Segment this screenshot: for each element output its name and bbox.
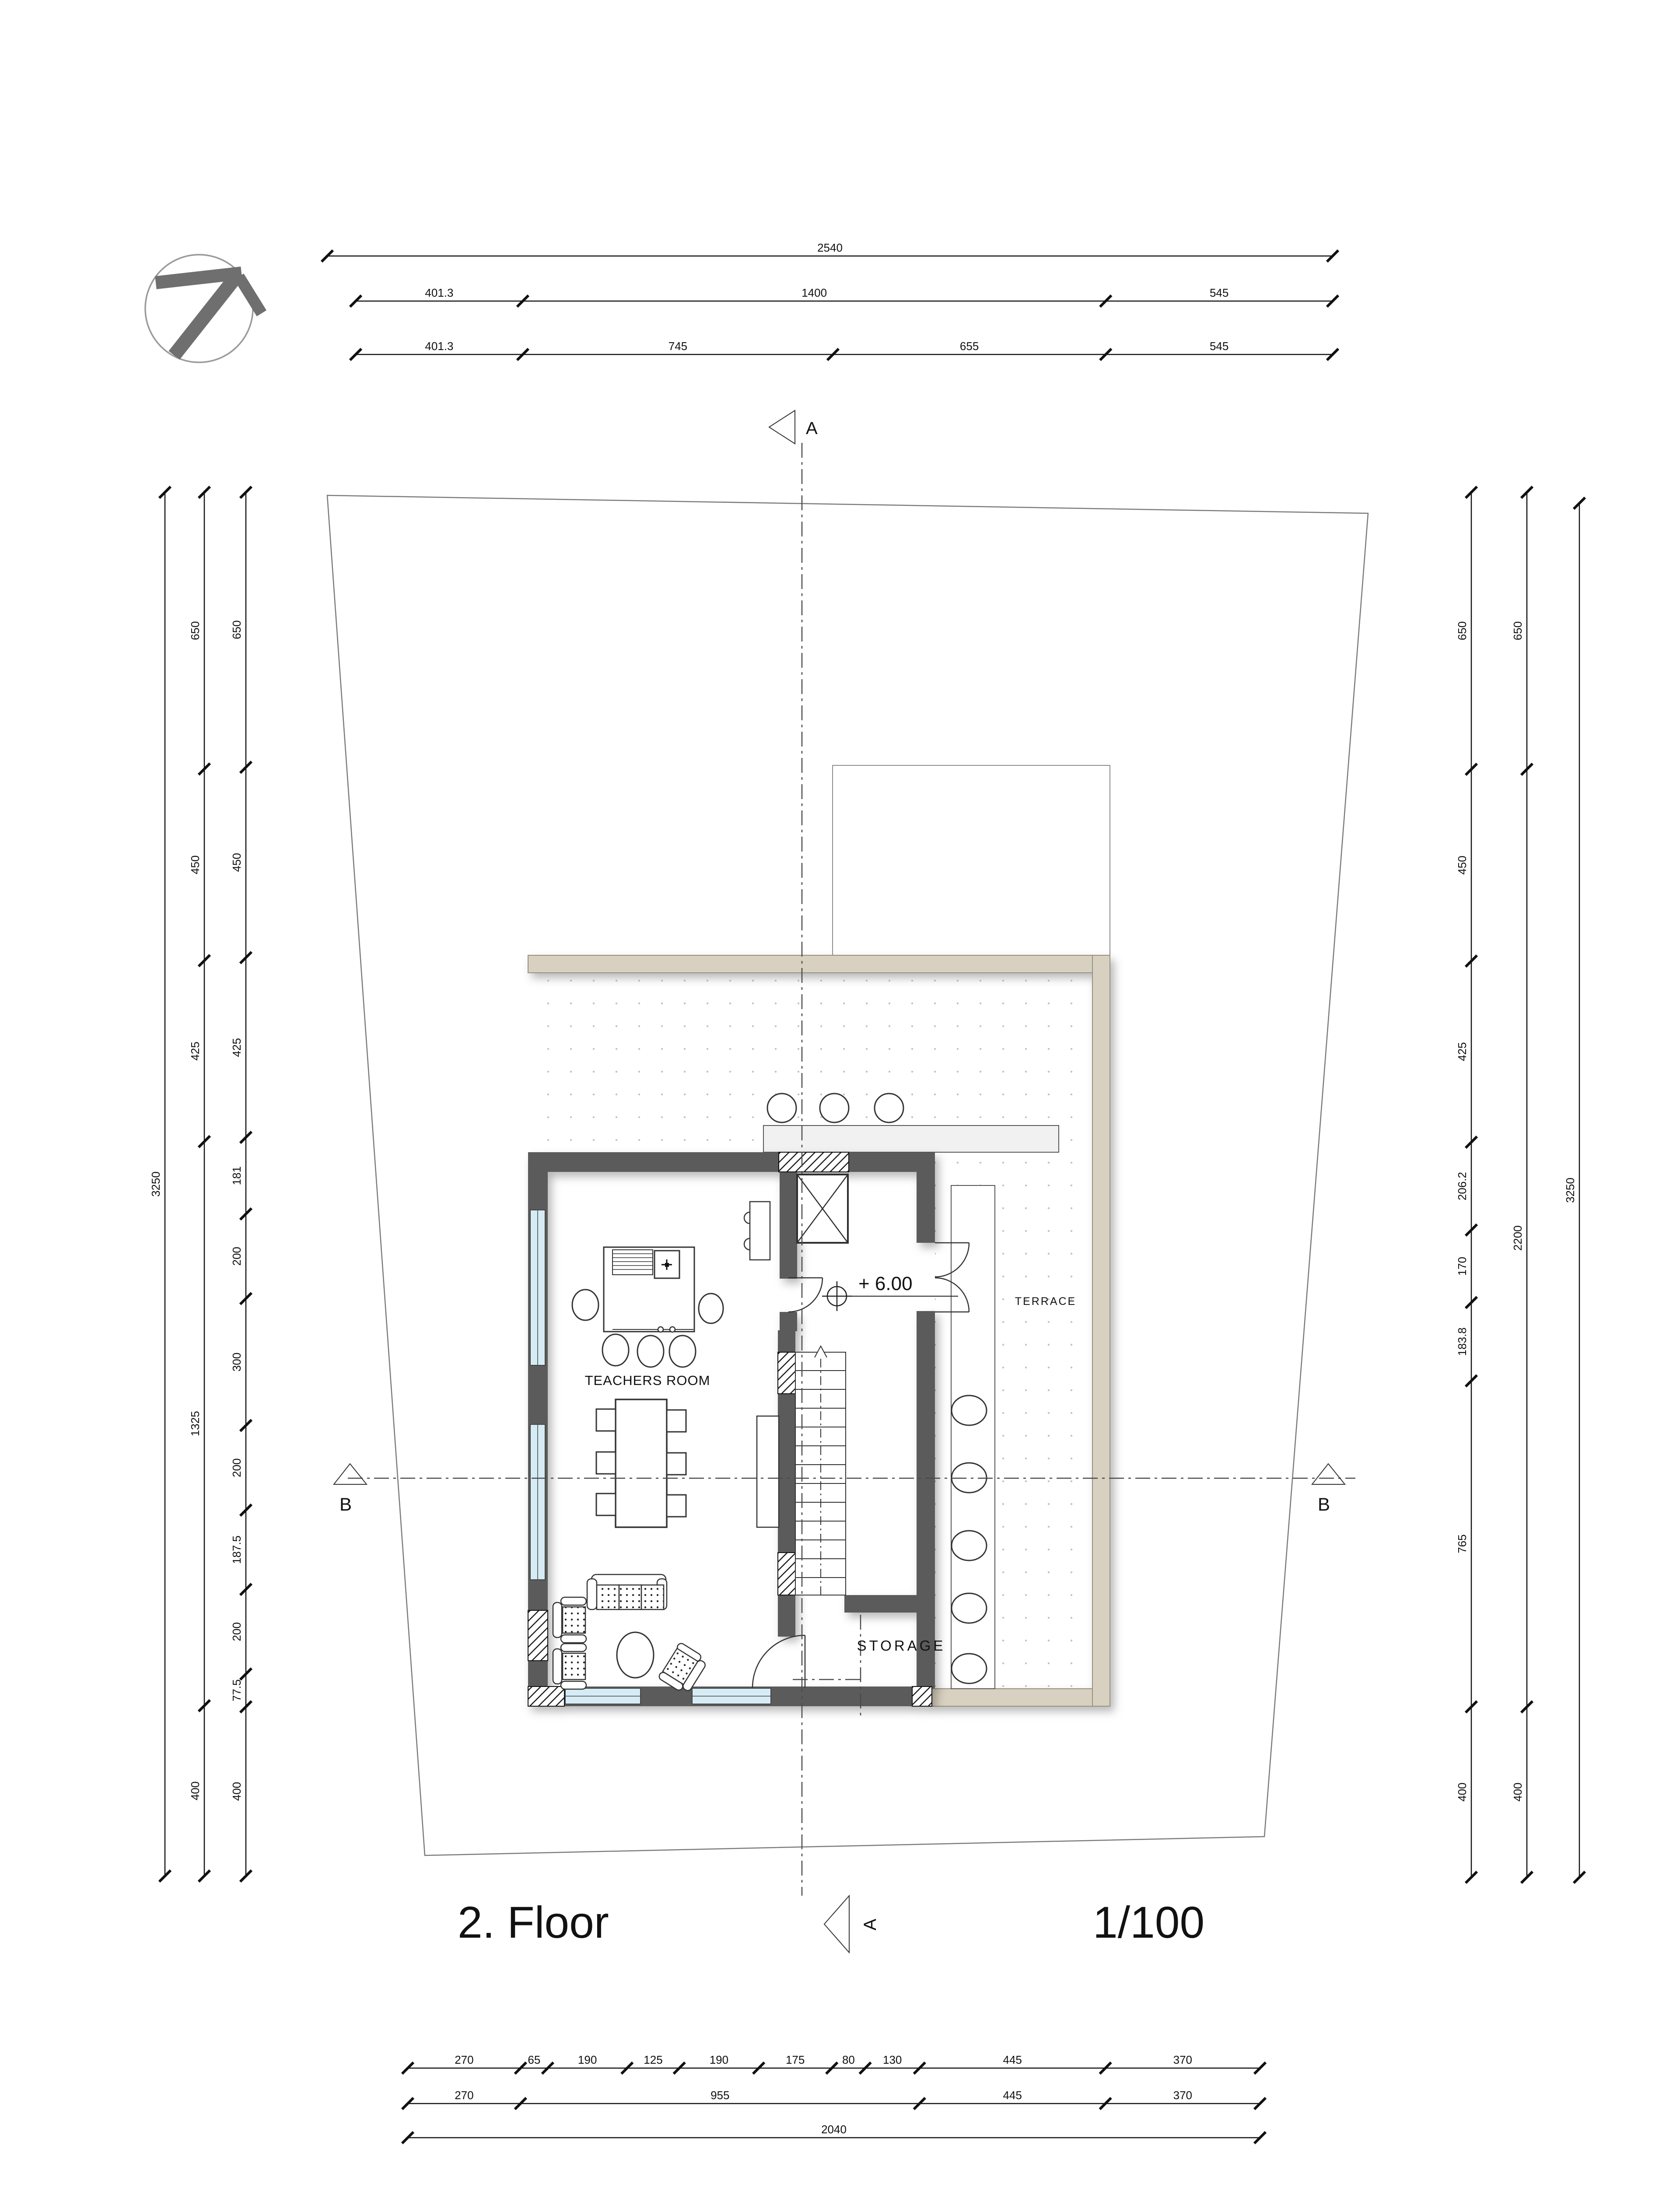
svg-text:2200: 2200 xyxy=(1511,1225,1524,1251)
storage-label: STORAGE xyxy=(857,1637,946,1654)
svg-text:2540: 2540 xyxy=(817,241,843,254)
north-arrow-icon xyxy=(145,255,262,362)
teachers-room-furniture xyxy=(553,1202,779,1696)
svg-text:650: 650 xyxy=(1511,621,1524,640)
svg-text:400: 400 xyxy=(189,1781,202,1800)
section-letter: B xyxy=(339,1494,352,1515)
section-letter: A xyxy=(861,1918,880,1930)
section-letter: A xyxy=(806,419,818,438)
svg-text:401.3: 401.3 xyxy=(425,286,453,299)
conference-table xyxy=(596,1399,686,1527)
svg-text:190: 190 xyxy=(578,2053,597,2066)
svg-text:125: 125 xyxy=(644,2053,662,2066)
svg-text:450: 450 xyxy=(1456,856,1469,874)
hatched-wall-segments xyxy=(528,1152,932,1706)
svg-text:400: 400 xyxy=(1511,1783,1524,1802)
svg-text:370: 370 xyxy=(1173,2053,1192,2066)
svg-text:655: 655 xyxy=(960,340,979,353)
sofa xyxy=(587,1574,667,1609)
svg-text:425: 425 xyxy=(230,1038,243,1057)
elevation-value: + 6.00 xyxy=(858,1273,913,1294)
svg-text:955: 955 xyxy=(710,2089,729,2102)
neighbor-building-outline xyxy=(833,765,1110,955)
svg-text:445: 445 xyxy=(1003,2053,1022,2066)
svg-text:187.5: 187.5 xyxy=(230,1536,243,1564)
svg-text:3250: 3250 xyxy=(149,1171,162,1197)
svg-text:77.5: 77.5 xyxy=(230,1680,243,1702)
elevator-shaft xyxy=(797,1175,848,1243)
section-marker-a-top: A xyxy=(769,410,818,444)
wall-cabinet xyxy=(744,1202,770,1260)
svg-text:80: 80 xyxy=(842,2053,855,2066)
svg-text:370: 370 xyxy=(1173,2089,1192,2102)
desk xyxy=(604,1247,694,1332)
armchair xyxy=(553,1597,586,1643)
svg-text:545: 545 xyxy=(1210,340,1228,353)
svg-text:3250: 3250 xyxy=(1564,1178,1577,1203)
svg-text:300: 300 xyxy=(230,1353,243,1371)
svg-text:181: 181 xyxy=(230,1166,243,1185)
sideboard xyxy=(757,1416,779,1527)
svg-text:270: 270 xyxy=(455,2053,473,2066)
svg-text:1400: 1400 xyxy=(801,286,827,299)
scale-label: 1/100 xyxy=(1093,1897,1204,1947)
svg-text:400: 400 xyxy=(230,1782,243,1801)
svg-text:450: 450 xyxy=(189,856,202,874)
entry-step-slab xyxy=(763,1126,1059,1152)
terrace-label: TERRACE xyxy=(1015,1295,1076,1308)
section-letter: B xyxy=(1318,1494,1330,1515)
svg-text:183.8: 183.8 xyxy=(1456,1327,1469,1356)
svg-text:745: 745 xyxy=(668,340,687,353)
svg-text:65: 65 xyxy=(528,2053,540,2066)
svg-text:425: 425 xyxy=(1456,1042,1469,1061)
floor-plan-sheet: + 6.00 TEACHERS ROOM TERRACE STORAGE A A… xyxy=(0,0,1680,2188)
staircase xyxy=(795,1346,846,1595)
svg-text:200: 200 xyxy=(230,1458,243,1477)
dimension-lines: 2540401.31400545401.37456555452706519012… xyxy=(149,241,1585,2143)
svg-text:2040: 2040 xyxy=(821,2123,847,2136)
planter-circles-top xyxy=(767,1094,903,1122)
svg-text:400: 400 xyxy=(1456,1783,1469,1802)
armchair xyxy=(553,1644,586,1689)
svg-text:200: 200 xyxy=(230,1247,243,1266)
svg-text:445: 445 xyxy=(1003,2089,1022,2102)
section-marker-a-bottom: A xyxy=(824,1896,880,1953)
svg-text:650: 650 xyxy=(189,621,202,640)
section-marker-b-left: B xyxy=(334,1464,367,1515)
section-marker-b-right: B xyxy=(1312,1464,1345,1515)
svg-text:175: 175 xyxy=(786,2053,805,2066)
svg-text:206.2: 206.2 xyxy=(1456,1172,1469,1200)
svg-text:130: 130 xyxy=(883,2053,902,2066)
svg-text:190: 190 xyxy=(710,2053,728,2066)
svg-text:401.3: 401.3 xyxy=(425,340,453,353)
svg-text:450: 450 xyxy=(230,853,243,872)
svg-text:650: 650 xyxy=(1456,621,1469,640)
svg-text:425: 425 xyxy=(189,1041,202,1060)
svg-text:765: 765 xyxy=(1456,1534,1469,1553)
svg-text:1325: 1325 xyxy=(189,1411,202,1436)
svg-text:200: 200 xyxy=(230,1622,243,1641)
page-title: 2. Floor xyxy=(458,1897,609,1947)
plan-drawing: + 6.00 TEACHERS ROOM TERRACE STORAGE A A… xyxy=(0,0,1680,2188)
svg-text:545: 545 xyxy=(1210,286,1228,299)
teachers-room-label: TEACHERS ROOM xyxy=(585,1373,710,1388)
svg-text:650: 650 xyxy=(230,620,243,639)
coffee-table xyxy=(617,1632,654,1678)
svg-text:270: 270 xyxy=(455,2089,473,2102)
building-walls xyxy=(528,1152,935,1706)
svg-text:170: 170 xyxy=(1456,1257,1469,1276)
